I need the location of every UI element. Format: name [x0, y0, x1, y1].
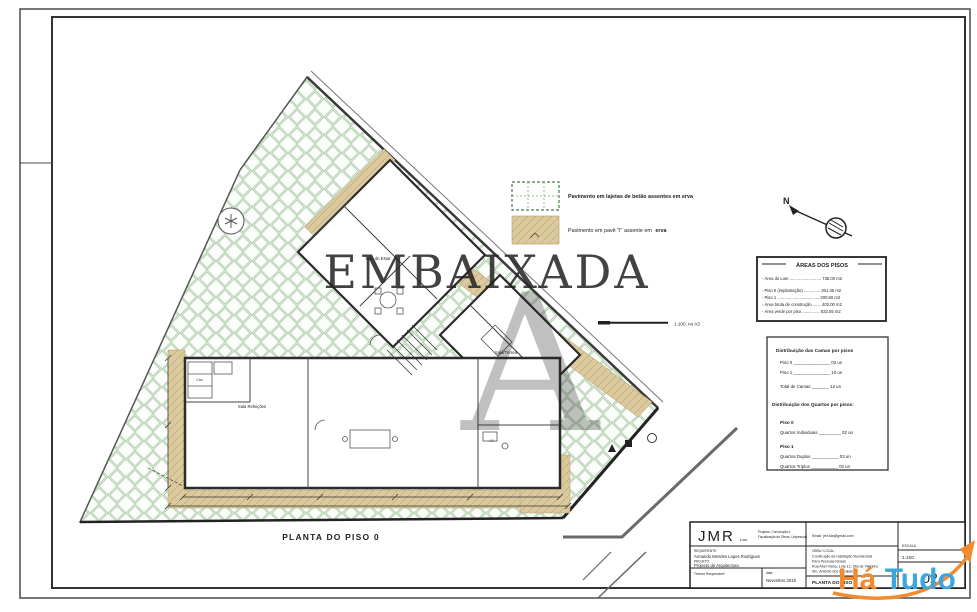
quartos-title: Distribuição dos Quartos por pisos: — [772, 402, 854, 408]
site-plan: Sala Refeições Sala de Estar Sala/Térrea… — [80, 71, 737, 598]
camas-row: Piso 1 _______________ 10 un — [780, 370, 843, 375]
drawing-sheet: Sala Refeições Sala de Estar Sala/Térrea… — [0, 0, 977, 612]
room-label: Coz. — [196, 378, 203, 382]
data-value: Novembro 2019 — [766, 578, 796, 583]
company-desc-2: Fiscalização de Obras, Unipessoal — [758, 535, 807, 539]
tree-marker — [218, 208, 244, 234]
areas-row: - Piso 0 (implantação) .............. 20… — [762, 288, 842, 293]
room-label: Sala Refeições — [238, 404, 266, 409]
camas-title: Distribuição das Camas por pisos — [776, 348, 854, 354]
camas-row: Piso 0 _______________ 02 un — [780, 360, 843, 365]
hatudo-logo-text: Há Tudo — [838, 563, 956, 596]
requerente-value: Armando Mendes Lopes Rodrigues — [694, 554, 760, 559]
legend: Pavimento em lajetas de betão assentes e… — [512, 182, 694, 244]
areas-box: ÁREAS DOS PISOS - Área do Lote .........… — [757, 257, 886, 321]
camas-quartos-box: Distribuição das Camas por pisos Piso 0 … — [767, 337, 888, 470]
hatudo-logo-tudo: Tudo — [885, 563, 956, 596]
legend-label-pave-text: Pavimento em pavê "I" assente em — [568, 228, 652, 234]
scale-bar-label: 1:100, no A3 — [674, 322, 700, 327]
quartos-piso1-row: Quartos Duplos ___________ 03 un — [780, 454, 851, 459]
email-value: Email: jmr.lda@gmail.com — [812, 534, 854, 538]
escala-value: 1:100 — [902, 555, 914, 561]
company-desc-1: Projetos, Construção e — [758, 530, 791, 534]
areas-row: - Área verde por piso ............... 53… — [762, 309, 841, 314]
tecnico-label: Técnico Responsável — [694, 572, 725, 576]
areas-row: - Área bruta de construção ....... 402.0… — [762, 302, 843, 307]
areas-row: - Área do Lote .........................… — [762, 276, 843, 281]
north-label: N — [783, 196, 790, 206]
projeto-value: Projecto de Arquitectura — [694, 563, 739, 568]
company-suffix: Lda. — [740, 537, 748, 542]
legend-swatch-pave — [512, 216, 559, 244]
quartos-piso1-label: Piso 1 — [780, 444, 794, 449]
legend-label-lajetas: Pavimento em lajetas de betão assentes e… — [568, 194, 694, 200]
camas-row: Total de Camas _______ 12 un — [780, 384, 842, 389]
watermark-embaixada: EMBAIXADA — [323, 245, 650, 299]
obra-line: Construção de Habitação Residencial — [812, 555, 872, 559]
areas-row: - Piso 1 ...............................… — [762, 295, 841, 300]
legend-label-pave-bold: erva — [655, 228, 667, 234]
legend-label-pave: Pavimento em pavê "I" assente em erva — [568, 228, 667, 234]
requerente-label: REQUERENTE: — [694, 549, 717, 553]
quartos-piso0-label: Piso 0 — [780, 420, 794, 425]
plan-caption: PLANTA DO PISO 0 — [282, 532, 380, 542]
company-logo: JMR — [698, 528, 735, 545]
obra-label: OBRA / LOCAL: — [812, 549, 835, 553]
north-arrow: N — [783, 196, 852, 238]
data-label: data: — [766, 571, 773, 575]
quartos-piso1-row: Quartos Triplos ___________ 02 un — [780, 464, 851, 469]
plan-canvas: Sala Refeições Sala de Estar Sala/Térrea… — [0, 0, 977, 612]
scale-bar: 1:100, no A3 — [598, 321, 700, 327]
areas-title: ÁREAS DOS PISOS — [796, 262, 848, 269]
legend-swatch-lajetas — [512, 182, 559, 210]
hatudo-logo-ha: Há — [838, 563, 877, 596]
quartos-piso0-row: Quartos Individuais _________ 02 un — [780, 430, 854, 435]
escala-label: ESCALA — [902, 544, 917, 548]
